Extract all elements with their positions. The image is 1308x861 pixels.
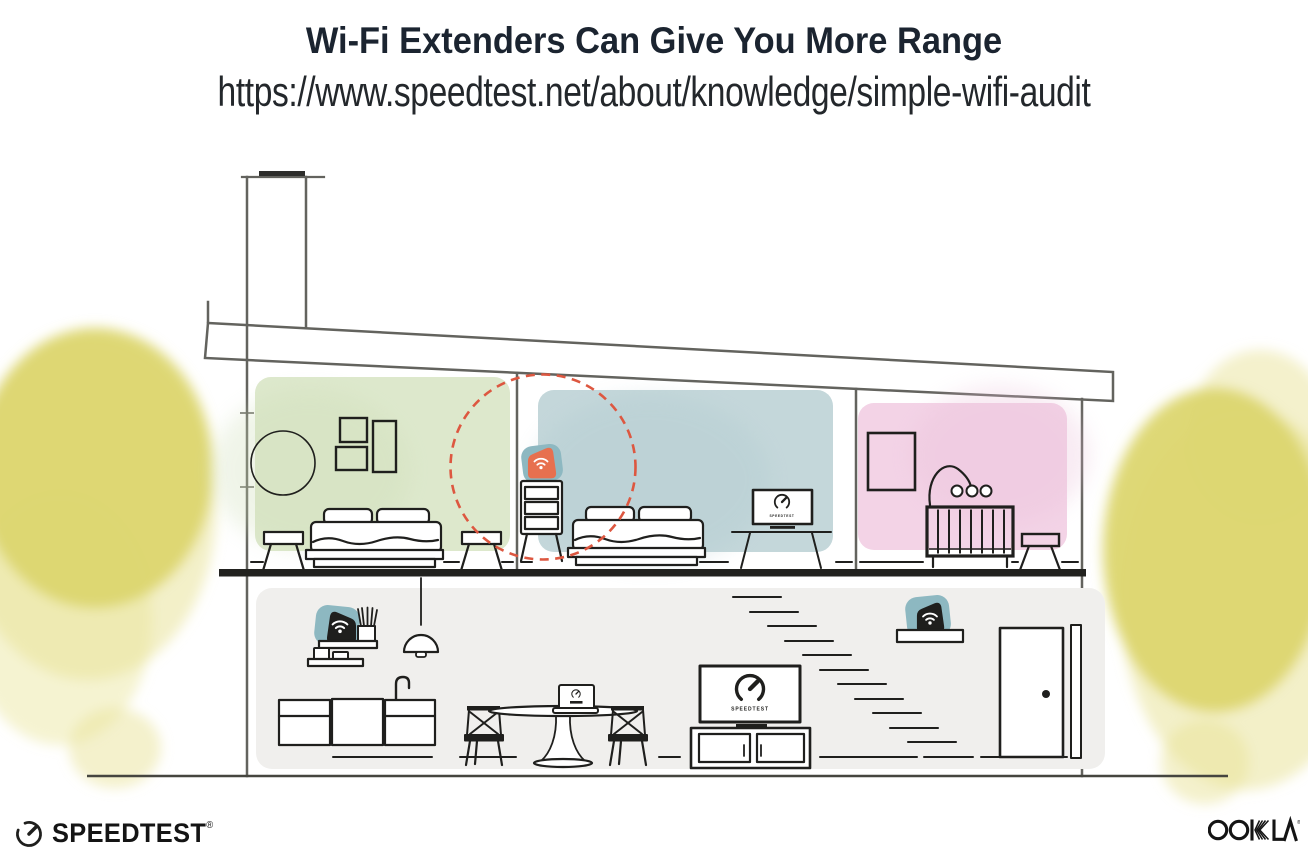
living-tv-area: SPEEDTEST xyxy=(691,666,810,768)
bedroom-blue: SPEEDTEST xyxy=(520,390,852,568)
tv-screen-label: SPEEDTEST xyxy=(731,707,769,713)
speedtest-wordmark: SPEEDTEST® xyxy=(52,818,214,849)
header: Wi-Fi Extenders Can Give You More Range … xyxy=(0,0,1308,116)
speedtest-logo: SPEEDTEST® xyxy=(14,818,224,849)
tv-screen-label: SPEEDTEST xyxy=(769,514,794,518)
infographic-canvas: Wi-Fi Extenders Can Give You More Range … xyxy=(0,0,1308,861)
nightstand xyxy=(262,532,305,574)
door-knob xyxy=(1042,690,1050,698)
source-url: https://www.speedtest.net/about/knowledg… xyxy=(131,68,1177,116)
door-sidelight xyxy=(1071,625,1081,758)
registered-mark: ® xyxy=(206,820,213,831)
nursery-pink xyxy=(858,385,1090,570)
living-floor: SPEEDTEST xyxy=(256,578,1105,769)
foliage-right xyxy=(1103,350,1308,804)
page-title: Wi-Fi Extenders Can Give You More Range xyxy=(46,20,1262,62)
ookla-wordmark: ® xyxy=(1208,816,1300,842)
chimney xyxy=(242,174,324,334)
stool xyxy=(1020,534,1060,570)
nightstand xyxy=(460,532,503,574)
wifi-extender-bedroom xyxy=(520,443,564,485)
floor-slab xyxy=(219,569,1086,577)
house-illustration: SPEEDTEST xyxy=(0,0,1308,861)
laptop xyxy=(553,685,598,713)
bedroom-green xyxy=(210,377,513,574)
foliage-left xyxy=(0,328,216,788)
registered-mark: ® xyxy=(1297,819,1300,826)
ookla-logo: ® xyxy=(1208,816,1300,847)
speedtest-gauge-icon xyxy=(14,819,44,849)
